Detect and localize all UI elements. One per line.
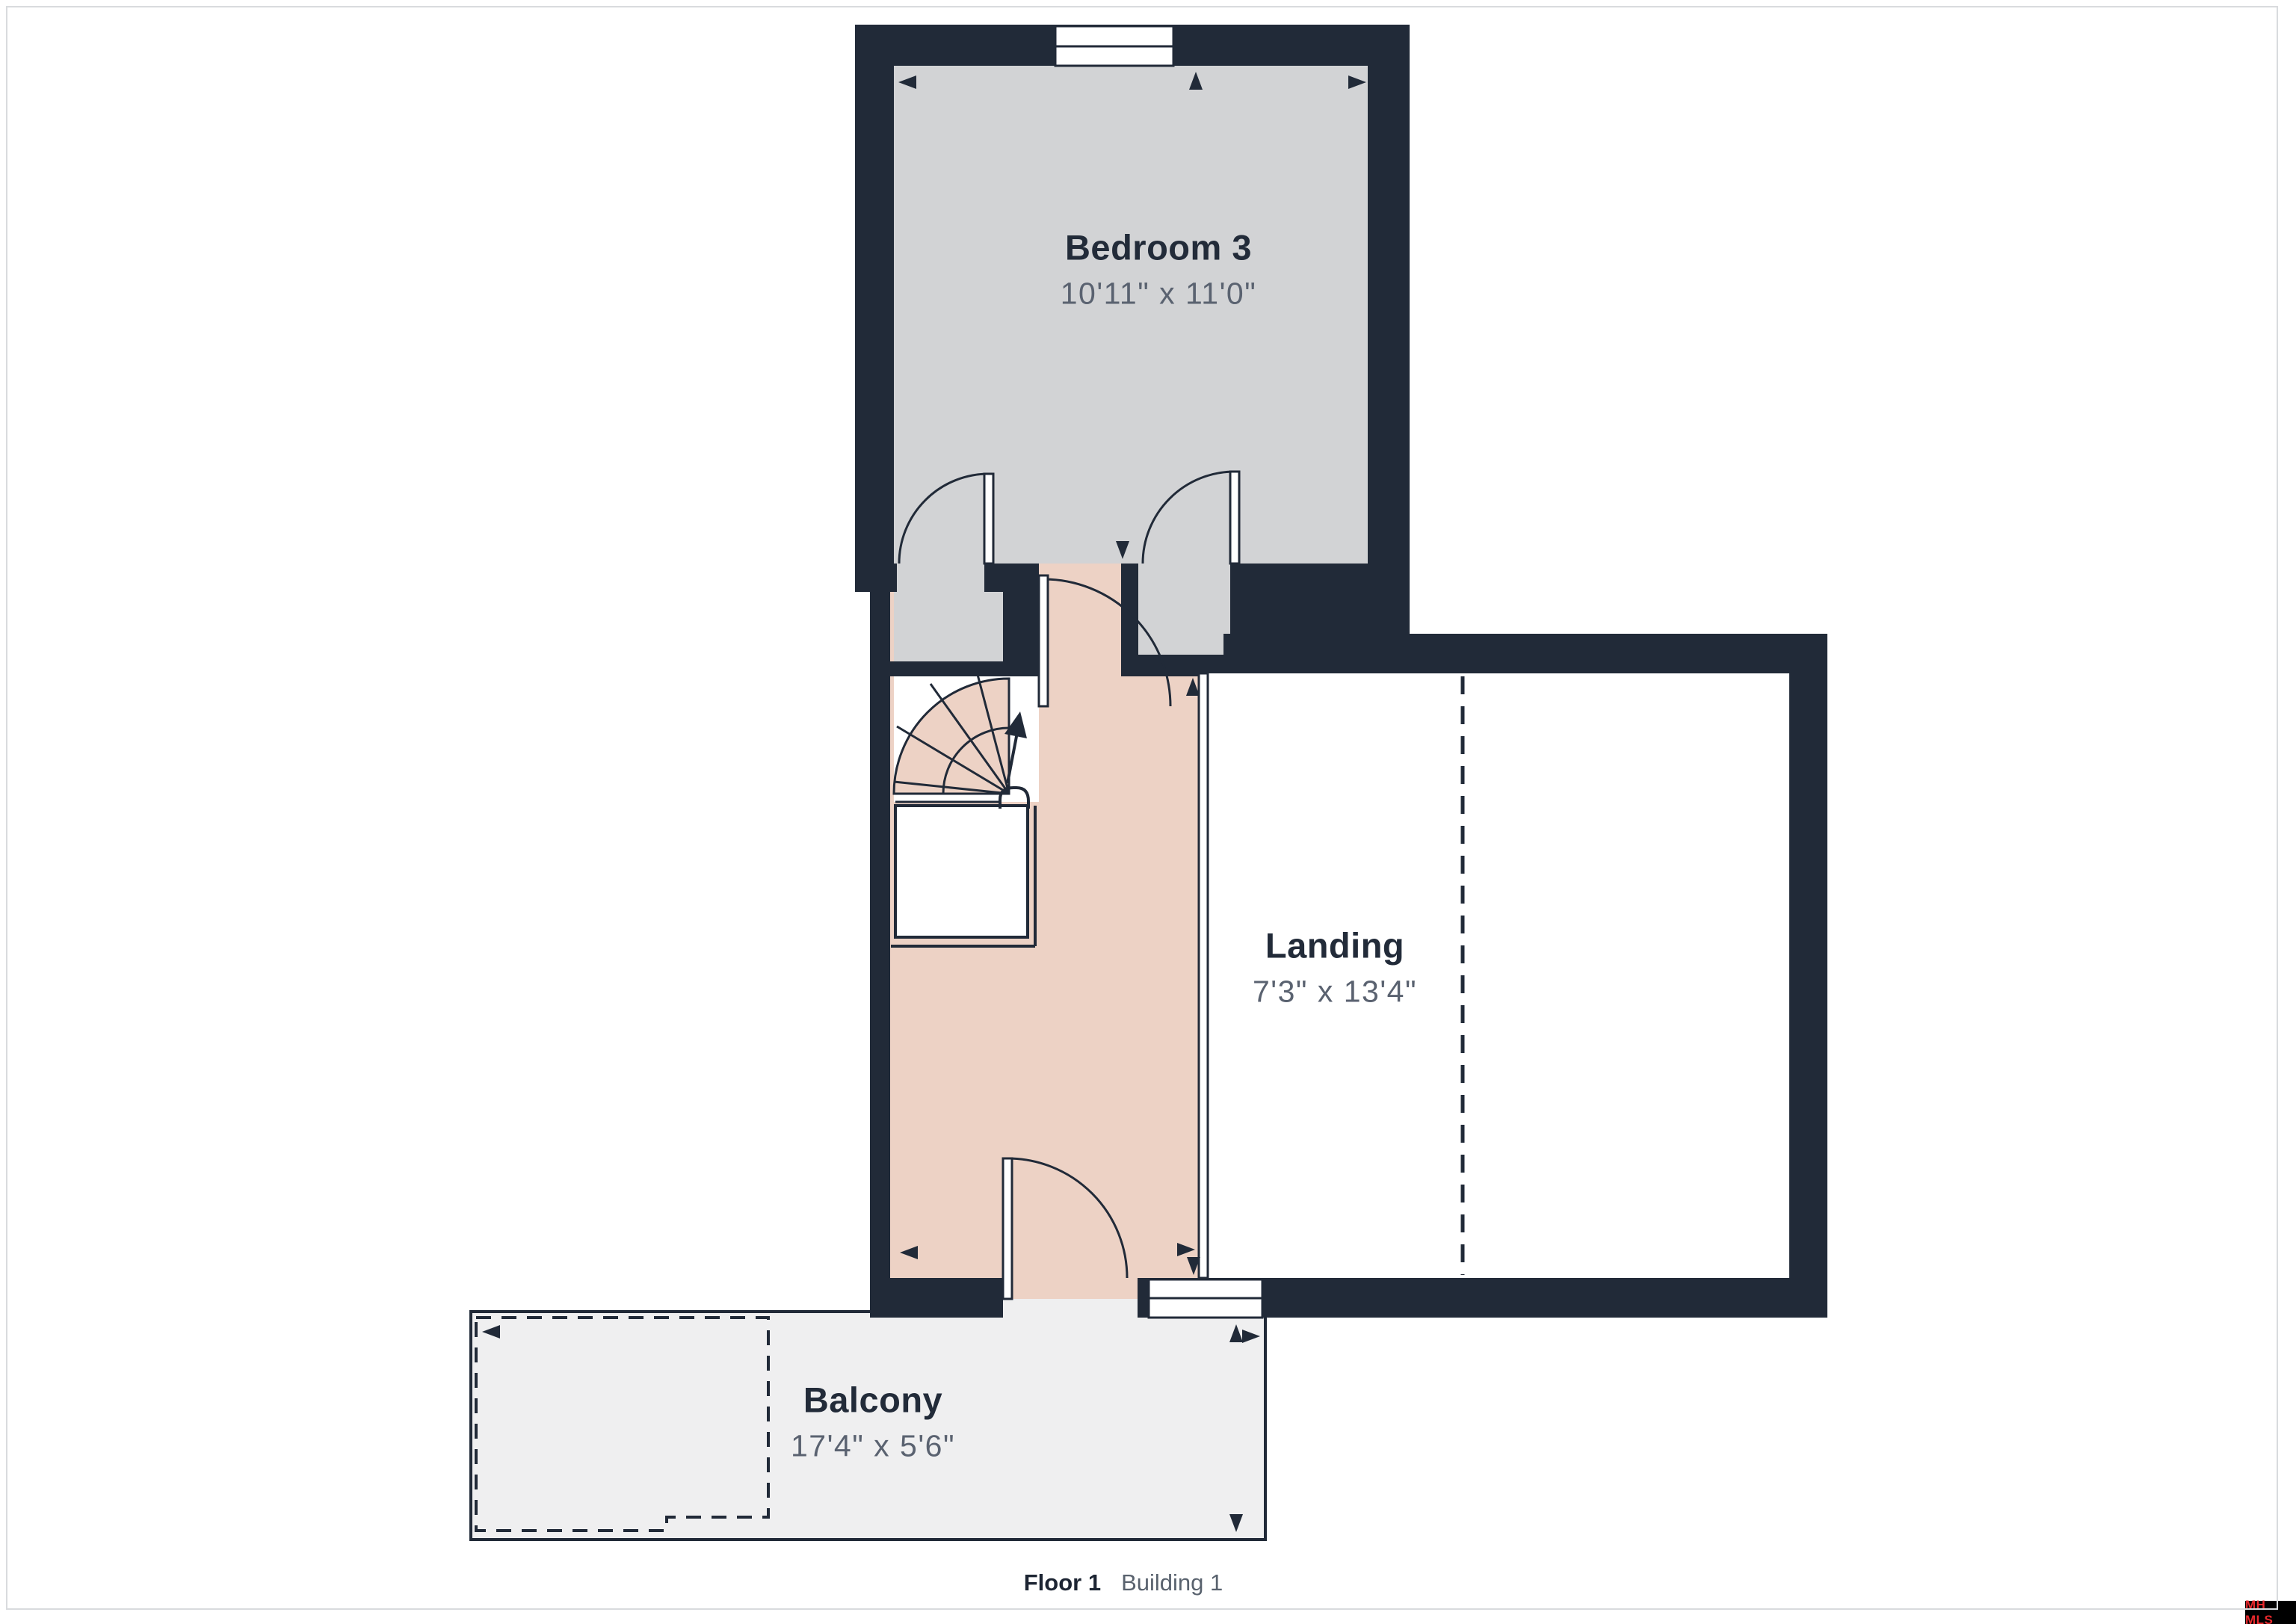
landing-right-wall: [1789, 634, 1827, 1318]
floor-caption: Floor 1 Building 1: [1024, 1569, 1223, 1596]
room-label-bedroom3: Bedroom 3 10'11" x 11'0": [1061, 226, 1257, 312]
floor-label: Floor 1: [1024, 1569, 1101, 1596]
mls-watermark: MH MLS: [2245, 1601, 2296, 1624]
room-dimensions: 17'4" x 5'6": [791, 1427, 955, 1464]
room-label-balcony: Balcony 17'4" x 5'6": [791, 1379, 955, 1465]
hall-left-wall: [870, 592, 890, 1278]
hall-landing-divider-wall: [1199, 673, 1208, 1278]
bedroom3-window: [1055, 26, 1173, 66]
floorplan-page: Bedroom 3 10'11" x 11'0" Landing 7'3" x …: [0, 0, 2296, 1624]
room-name: Balcony: [791, 1379, 955, 1423]
bottom-wall: [870, 1278, 1827, 1318]
room-name: Landing: [1253, 924, 1417, 969]
left-vestibule: [894, 592, 1003, 661]
stairwell-void: [895, 806, 1028, 937]
room-label-landing: Landing 7'3" x 13'4": [1253, 924, 1417, 1010]
balcony-door-opening: [1003, 1278, 1138, 1299]
room-name: Bedroom 3: [1061, 226, 1257, 271]
mls-watermark-text: MH MLS: [2245, 1598, 2296, 1624]
landing-top-wall: [1223, 634, 1827, 673]
room-dimensions: 7'3" x 13'4": [1253, 973, 1417, 1010]
bedroom3-floor: [894, 66, 1368, 564]
building-label: Building 1: [1121, 1569, 1223, 1596]
room-dimensions: 10'11" x 11'0": [1061, 275, 1257, 312]
right-vestibule: [1138, 592, 1230, 655]
stairs: [891, 672, 1039, 946]
